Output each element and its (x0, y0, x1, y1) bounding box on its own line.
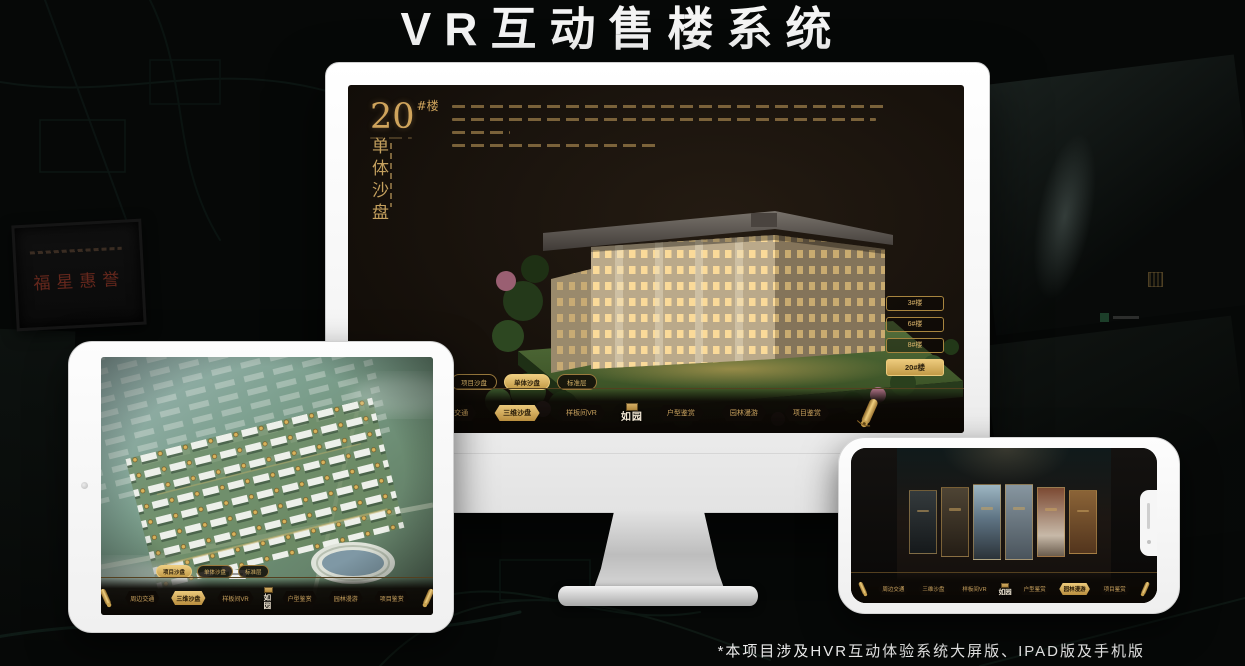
heading-suffix: #楼 (417, 99, 439, 113)
plaque-text: 福星惠誉 (17, 264, 142, 295)
heading-vertical: 单体沙盘 (366, 137, 391, 225)
floor-button-6[interactable]: 6#楼 (886, 317, 944, 332)
brand-logo-text: 如园 (999, 589, 1012, 596)
scroll-icon-left[interactable] (856, 580, 870, 598)
speaker-icon (1147, 503, 1150, 529)
phone-device: 周边交通 三维沙盘 样板间VR 如园 户型鉴赏 园林漫游 项目鉴赏 (838, 437, 1180, 614)
background-logo-hint (1100, 313, 1109, 322)
monitor-stand-base (558, 586, 758, 606)
heading-vertical-rule (390, 143, 392, 207)
monitor-stand (593, 511, 725, 591)
page-title: VR互动售楼系统 (0, 0, 1245, 58)
nav-item-unit-plans[interactable]: 户型鉴赏 (281, 591, 319, 605)
background-seal-icon (1148, 272, 1163, 287)
nav-item-3d-sandbox[interactable]: 三维沙盘 (916, 583, 950, 595)
floor-button-3[interactable]: 3#楼 (886, 296, 944, 311)
description-paragraph (452, 105, 888, 147)
sandbox-heading: 20#楼 (370, 97, 439, 139)
gallery-card[interactable] (909, 490, 937, 554)
nav-item-garden-tour[interactable]: 园林漫游 (327, 591, 365, 605)
text-line (452, 131, 510, 134)
brand-logo-text: 如园 (264, 594, 273, 609)
nav-item-project-view[interactable]: 项目鉴赏 (373, 591, 411, 605)
floor-button-20[interactable]: 20#楼 (886, 359, 944, 376)
card-label (949, 508, 961, 511)
seal-icon (626, 403, 638, 411)
card-label (1013, 507, 1025, 510)
nav-item-showroom-vr[interactable]: 样板间VR (555, 405, 608, 421)
nav-item-traffic[interactable]: 周边交通 (876, 583, 910, 595)
background-plaque: 福星惠誉 (11, 219, 146, 332)
nav-item-unit-plans[interactable]: 户型鉴赏 (656, 405, 706, 421)
phone-screen: 周边交通 三维沙盘 样板间VR 如园 户型鉴赏 园林漫游 项目鉴赏 (851, 448, 1157, 603)
seal-icon (1001, 583, 1009, 588)
gallery-card[interactable] (941, 487, 969, 557)
camera-icon (1147, 540, 1151, 544)
text-line (452, 105, 884, 108)
nav-item-project-view[interactable]: 项目鉴赏 (1098, 583, 1132, 595)
gallery-card[interactable] (973, 484, 1001, 560)
heading-number: 20 (370, 97, 415, 137)
nav-item-showroom-vr[interactable]: 样板间VR (215, 591, 255, 605)
nav-item-3d-sandbox[interactable]: 三维沙盘 (492, 405, 542, 421)
text-line (452, 144, 658, 147)
camera-icon (81, 482, 88, 489)
nav-item-showroom-vr[interactable]: 样板间VR (956, 583, 992, 595)
text-line (452, 118, 876, 121)
nav-item-3d-sandbox[interactable]: 三维沙盘 (169, 591, 207, 605)
scroll-icon-right[interactable] (419, 587, 433, 609)
floor-button-group: 3#楼 6#楼 8#楼 20#楼 (886, 296, 944, 376)
app-navbar: 周边交通 三维沙盘 样板间VR 如园 户型鉴赏 园林漫游 项目鉴赏 (851, 572, 1157, 603)
nav-item-garden-tour[interactable]: 园林漫游 (719, 405, 769, 421)
brand-logo: 如园 (264, 587, 273, 609)
card-label (917, 510, 929, 513)
nav-item-garden-tour[interactable]: 园林漫游 (1058, 583, 1092, 595)
footnote: *本项目涉及HVR互动体验系统大屏版、IPAD版及手机版 (718, 640, 1145, 661)
gallery-card[interactable] (1069, 490, 1097, 554)
gallery-card[interactable] (1005, 484, 1033, 560)
brand-logo: 如园 (999, 583, 1012, 596)
brand-logo-text: 如园 (621, 413, 643, 423)
panorama-gallery (909, 482, 1097, 562)
tablet-screen: 项目沙盘 单体沙盘 标准层 周边交通 三维沙盘 样板间VR 如园 户型鉴赏 (101, 357, 433, 615)
nav-item-traffic[interactable]: 周边交通 (123, 591, 161, 605)
nav-item-unit-plans[interactable]: 户型鉴赏 (1018, 583, 1052, 595)
nav-item-project-view[interactable]: 项目鉴赏 (782, 405, 832, 421)
brand-logo: 如园 (621, 403, 643, 423)
scroll-icon-left[interactable] (101, 587, 115, 609)
card-label (1045, 508, 1057, 511)
card-label (1077, 510, 1089, 513)
card-label (981, 507, 993, 510)
plaque-subline (30, 247, 122, 255)
stage: 福星惠誉 VR互动售楼系统 20#楼 单体沙盘 (0, 0, 1245, 666)
scroll-icon[interactable] (855, 397, 883, 429)
gallery-card[interactable] (1037, 487, 1065, 557)
scroll-icon-right[interactable] (1138, 580, 1152, 598)
app-navbar: 周边交通 三维沙盘 样板间VR 如园 户型鉴赏 园林漫游 项目鉴赏 (101, 577, 433, 615)
floor-button-8[interactable]: 8#楼 (886, 338, 944, 353)
tablet-device: 项目沙盘 单体沙盘 标准层 周边交通 三维沙盘 样板间VR 如园 户型鉴赏 (68, 341, 454, 633)
ceiling-light (941, 448, 1071, 484)
phone-notch (1140, 490, 1157, 556)
